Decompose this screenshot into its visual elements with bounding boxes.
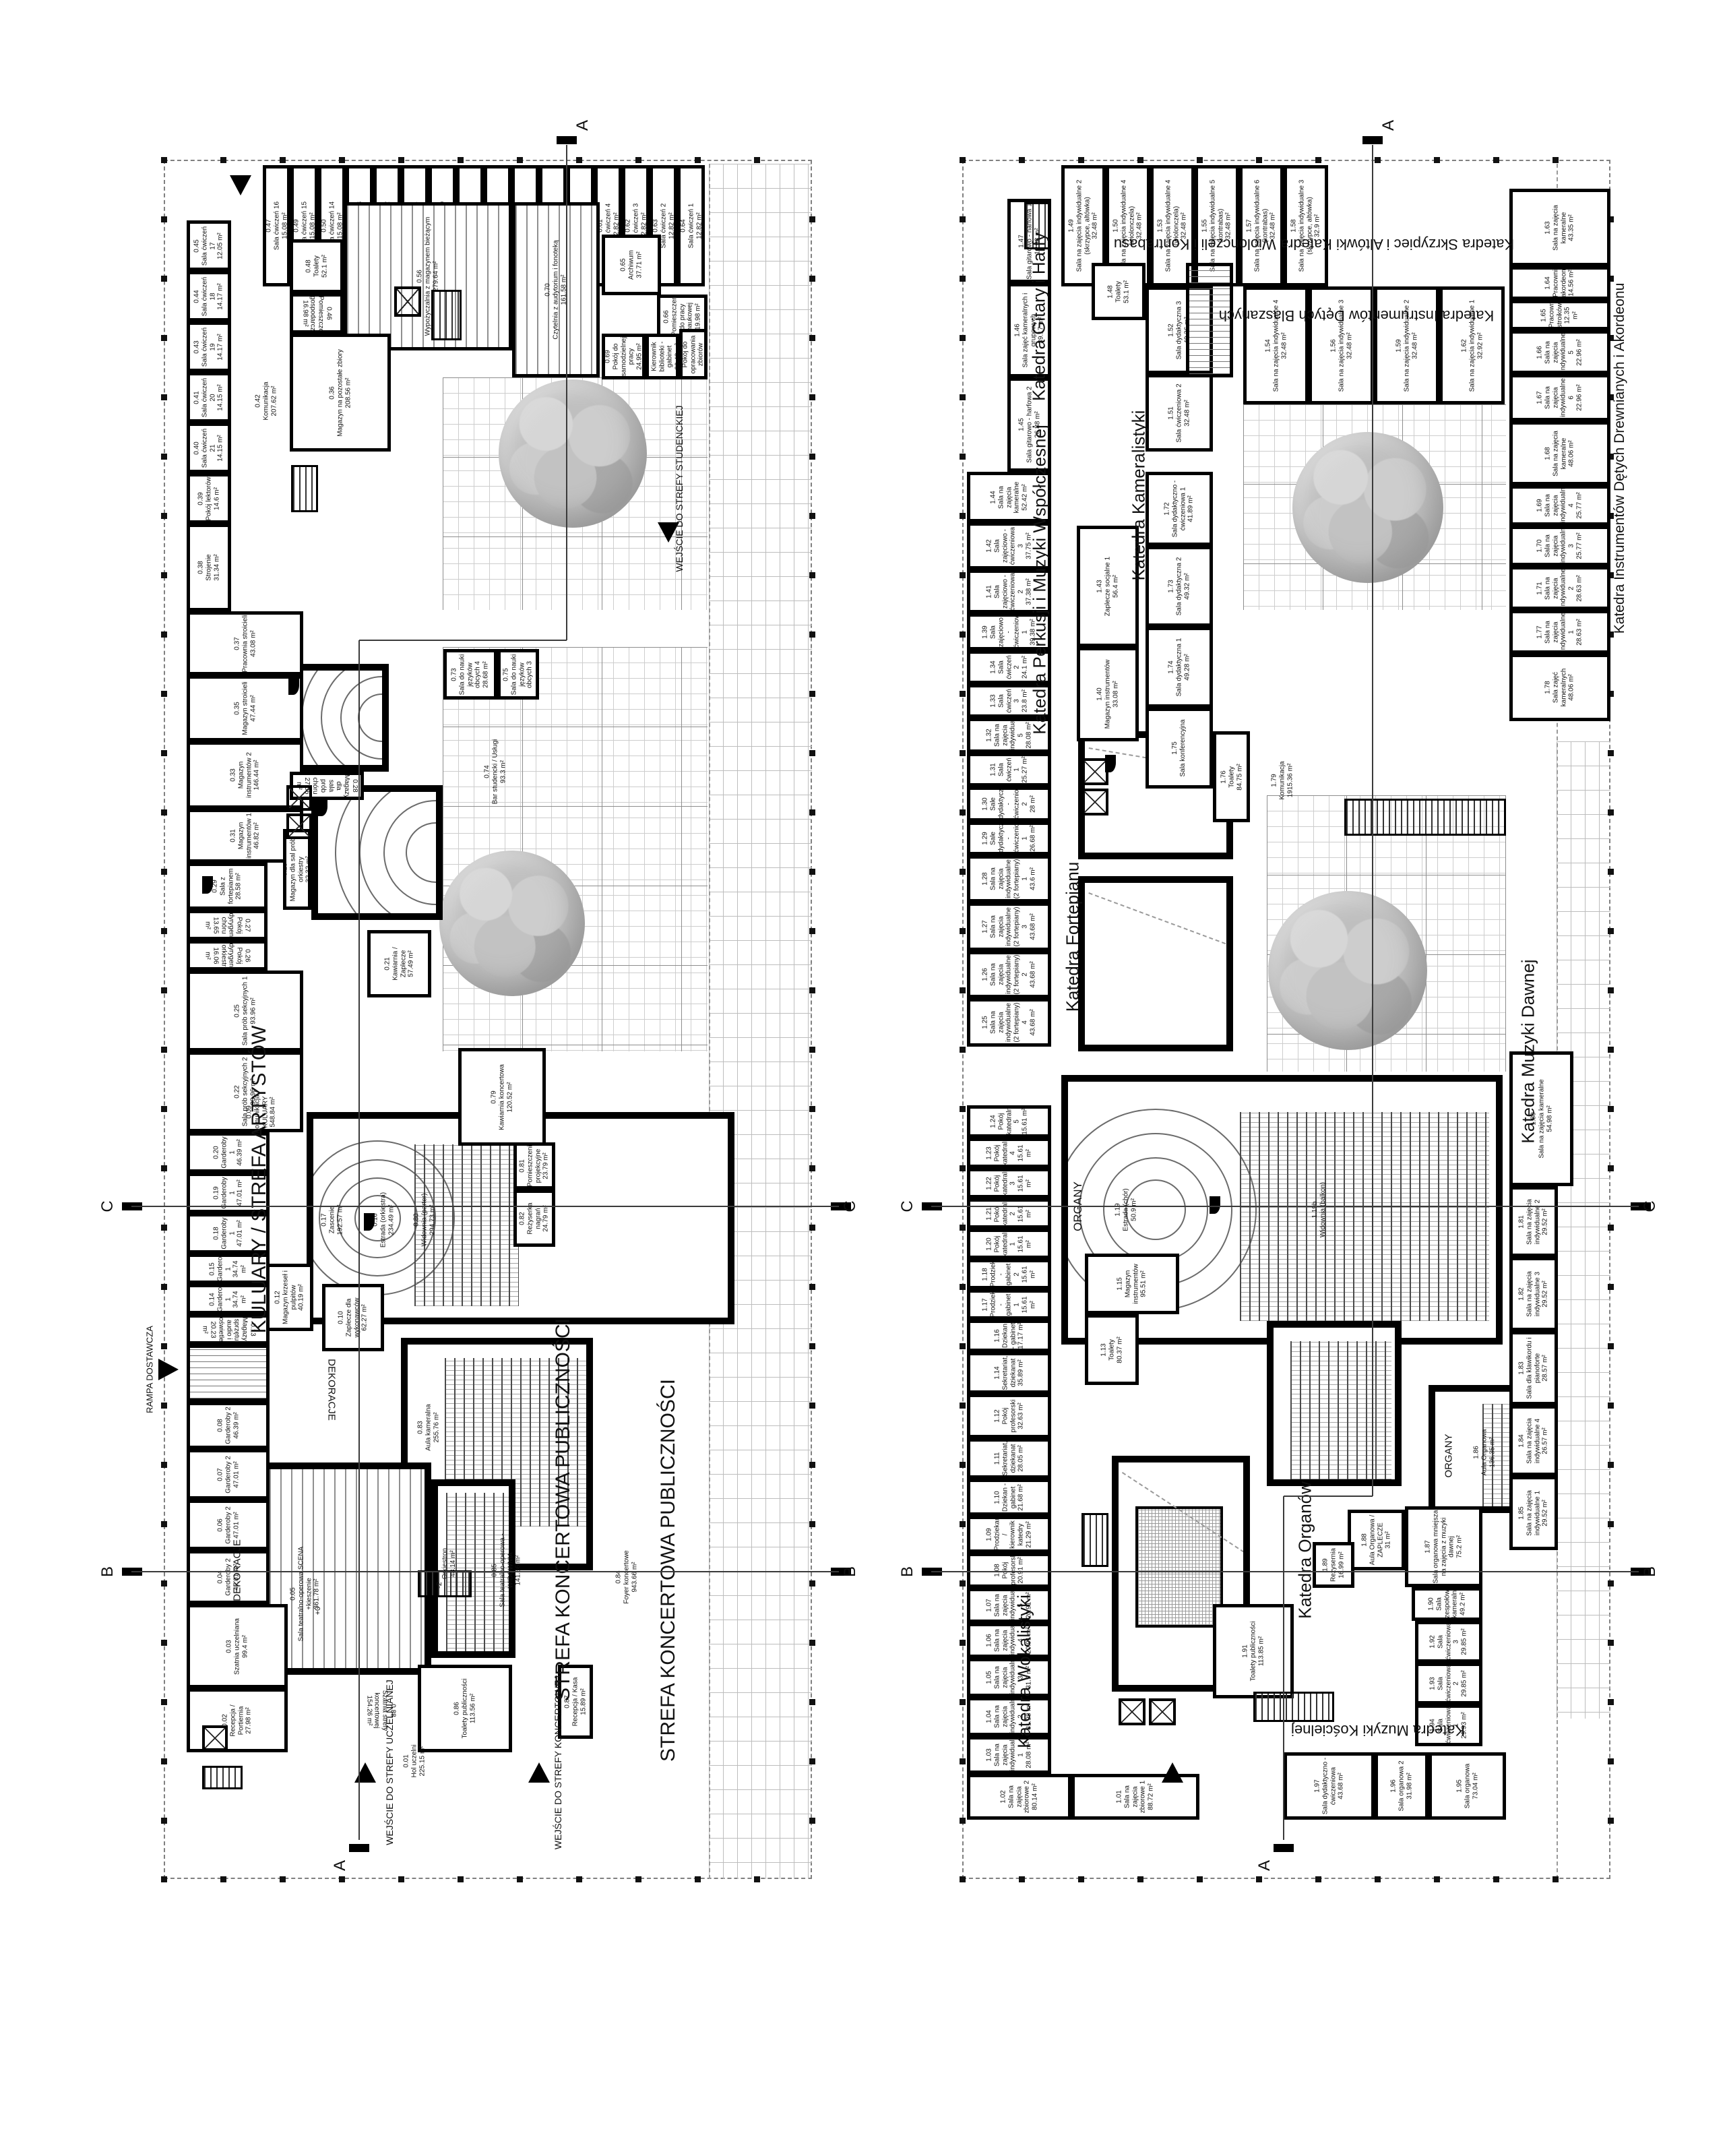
room-area: 21.29 m² — [1025, 1518, 1033, 1550]
room-number: 1.53 — [1156, 168, 1164, 284]
room-label: 1.33Sala ćwiczeń 323.8 m² — [989, 687, 1029, 715]
room-number: 1.79 — [1270, 741, 1278, 820]
room-area: 23.8 m² — [1021, 687, 1029, 715]
room-area: 80.37 m² — [1116, 1317, 1124, 1382]
room-label: 1.58Sala na zajęcia indywidualne 3 (skrz… — [1290, 168, 1321, 284]
room: 1.70Sala na zajęcia indywidualne 325.77 … — [1509, 526, 1610, 566]
room-label: 1.02Sala na zajęcia zbiorowe 280.14 m² — [999, 1777, 1039, 1817]
room-name: Komunikacja — [1278, 741, 1286, 820]
room-number: 1.26 — [981, 954, 989, 995]
room-label: 1.01Sala na zajęcia zbiorowe 188.72 m² — [1116, 1777, 1156, 1817]
room-number: 1.05 — [985, 1661, 993, 1694]
room-number: 1.58 — [1290, 168, 1298, 284]
column-dot — [960, 632, 966, 638]
room-area: 26.57 m² — [1542, 1408, 1550, 1473]
section-marker-letter: B — [1641, 1566, 1660, 1577]
room-number: 1.95 — [1455, 1755, 1464, 1817]
room-area: 29.85 m² — [1461, 1665, 1469, 1702]
room-number: 1.41 — [985, 572, 993, 611]
room: 1.56Sala na zajęcia indywidualne 332.48 … — [1309, 286, 1374, 404]
room-area: 49.28 m² — [1183, 629, 1191, 705]
room-area: 136.35 m² — [1488, 1415, 1496, 1490]
section-marker-bar — [922, 1202, 942, 1210]
room-number: 1.09 — [985, 1518, 993, 1550]
room-number: 1.51 — [1167, 377, 1175, 449]
room-name: Sala na zajęcia indywidualne 2 — [1544, 569, 1575, 607]
room-name: Sala na zajęcia indywidualne 6 (kontraba… — [1253, 168, 1269, 284]
room-label: 1.74Sala dydaktyczna 149.28 m² — [1167, 629, 1191, 705]
room-name: Toalety — [1228, 734, 1236, 820]
room-number: 1.12 — [993, 1396, 1001, 1436]
room-number: 1.72 — [1163, 474, 1171, 543]
room-name: Sala na zajęcia indywidualne 4 — [1526, 1408, 1542, 1473]
room-label: 1.95Sala organowa73.04 m² — [1455, 1755, 1479, 1817]
room-name: Pokój katedralny 4 — [993, 1140, 1017, 1165]
room-label: 1.84Sala na zajęcia indywidualne 426.57 … — [1517, 1408, 1549, 1473]
room-number: 1.68 — [1544, 424, 1552, 483]
column-dot — [960, 513, 966, 519]
room: 1.18Prodziekan - gabinet 215.61 m² — [967, 1259, 1051, 1289]
room: 1.81Sala na zajęcia indywidualne 229.52 … — [1509, 1186, 1558, 1257]
room-number: 1.83 — [1517, 1334, 1526, 1403]
column-dot — [960, 1106, 966, 1112]
room-name: Pokój katedralny 5 — [997, 1108, 1021, 1135]
room-name: Magazyn instrumentów — [1104, 650, 1112, 739]
room-number: 1.30 — [981, 789, 989, 819]
section-marker-letter: C — [1641, 1200, 1660, 1212]
zone-label: Katedra Skrzypiec i Altówki Katedra Wiol… — [1114, 235, 1514, 253]
column-dot — [1493, 1876, 1499, 1882]
room-label: 1.13Toalety80.37 m² — [1100, 1317, 1123, 1382]
room-label: 1.29Sale dydaktyczno - ćwiczeniowe 126.6… — [981, 824, 1037, 853]
zone-label: Katedra Instrumentów Dętych Drewnianych … — [1612, 283, 1628, 634]
room-area: 113.85 m² — [1257, 1607, 1265, 1696]
room-name: Sala ćwiczeń 3 — [997, 687, 1021, 715]
room-area: 33.08 m² — [1112, 650, 1120, 739]
column-dot — [1608, 987, 1614, 993]
room-name: Sala zespołów kameralnych — [1435, 1590, 1459, 1618]
room-number: 1.14 — [993, 1355, 1001, 1391]
zone-label: ORGANY — [1443, 1434, 1455, 1477]
column-dot — [960, 454, 966, 460]
room: 1.63Sala na zajęcia kameralne43.35 m² — [1509, 189, 1610, 266]
room-number: 1.93 — [1429, 1665, 1437, 1702]
room-name: Sala zajęciowo - ćwiczeniowa 2 — [993, 572, 1025, 611]
room-label: 1.68Sala na zajęcia kameralne48.06 m² — [1544, 424, 1575, 483]
room-area: 17.17 m² — [1017, 1322, 1025, 1349]
room: 1.13Toalety80.37 m² — [1085, 1314, 1139, 1385]
column-dot — [960, 1521, 966, 1527]
room: 1.97Sala dydaktyczno - ćwiczeniowa43.68 … — [1284, 1752, 1375, 1820]
room-area: 35.89 m² — [1017, 1355, 1025, 1391]
room-name: Sala na zajęcia kameralne — [1552, 191, 1568, 264]
room-name: Sala ćwiczeń 2 — [997, 653, 1021, 681]
room-area: 29.52 m² — [1542, 1189, 1550, 1254]
room: 1.11Sekretariat, dziekanat28.05 m² — [967, 1438, 1051, 1479]
room: 1.19bWidownia (balkon) — [1304, 1173, 1334, 1247]
room-number: 1.10 — [993, 1481, 1001, 1513]
room-number: 1.39 — [981, 616, 989, 648]
column-dot — [960, 572, 966, 578]
section-marker-bar — [1362, 136, 1383, 144]
room-name: Dziekan - gabinet — [1001, 1481, 1017, 1513]
section-marker-letter: C — [898, 1200, 917, 1212]
column-dot — [960, 869, 966, 875]
column-dot — [1019, 157, 1025, 163]
room-label: 1.28Sala na zajęcia indywidualne (2 fort… — [981, 858, 1037, 900]
room-area: 24.1 m² — [1021, 653, 1029, 681]
room-label: 1.77Sala na zajęcia indywidualne 128.63 … — [1536, 613, 1584, 651]
column-dot — [960, 1462, 966, 1468]
zone-label: Katedra Kameralistyki — [1129, 410, 1150, 581]
room-name: Sala zajęciowo - ćwiczeniowa 1 — [989, 616, 1029, 648]
column-dot — [960, 1225, 966, 1231]
zone-label: Katedra Gitary i Harfy — [1029, 233, 1050, 401]
column-dot — [960, 276, 966, 282]
column-dot — [1137, 157, 1143, 163]
room-number: 1.92 — [1429, 1624, 1437, 1660]
room-name: Sala na zajęcia indywidualne 4 (wioloncz… — [1164, 168, 1181, 284]
column-dot — [1608, 1225, 1614, 1231]
room: 1.87Sala organowa mniejsza na zajęcia z … — [1405, 1506, 1482, 1587]
room-area: 25.77 m² — [1576, 488, 1584, 523]
room-area: 43.68 m² — [1029, 905, 1037, 948]
room-number: 1.76 — [1220, 734, 1228, 820]
room-area: 15.61 m² — [1017, 1201, 1033, 1226]
room-label: 1.70Sala na zajęcia indywidualne 325.77 … — [1536, 528, 1584, 563]
room-area: 28 m² — [1029, 789, 1037, 819]
room: 1.21Pokój katedralny 215.61 m² — [967, 1198, 1051, 1229]
room-area: 48.06 m² — [1568, 424, 1576, 483]
room-name: Sala ćwiczeniowa 3 — [1437, 1624, 1460, 1660]
void-diagonal — [1088, 892, 1233, 968]
room-area: 43.68 m² — [1029, 1001, 1037, 1044]
room-number: 1.17 — [981, 1292, 989, 1317]
section-marker-letter: A — [1255, 1860, 1274, 1871]
column-dot — [960, 987, 966, 993]
room-label: 1.26Sala na zajęcia indywidualne (2 fort… — [981, 954, 1037, 995]
room: 1.40Magazyn instrumentów33.08 m² — [1077, 647, 1139, 741]
room-number: 1.75 — [1171, 710, 1179, 786]
column-dot — [1197, 1876, 1203, 1882]
room-name: Pracownia akordeonu — [1552, 269, 1568, 297]
column-dot — [960, 1640, 966, 1646]
room: 1.88Aula Organowa / ZAPLECZE31 m² — [1348, 1510, 1405, 1570]
room-label: 1.97Sala dydaktyczno - ćwiczeniowa43.68 … — [1313, 1755, 1345, 1817]
room: 1.59Sala na zajęcia indywidualne 232.48 … — [1374, 286, 1439, 404]
room-area: 28.63 m² — [1576, 613, 1584, 651]
room-name: Sala konferencyjna — [1179, 710, 1187, 786]
column-dot — [960, 928, 966, 934]
room-label: 1.89Reżysernia16.99 m² — [1321, 1545, 1345, 1585]
room-label: 1.32Sala na zajęcia indywidualne 528.08 … — [985, 720, 1033, 750]
room-number: 1.20 — [985, 1231, 993, 1256]
room-area: 15.61 m² — [1017, 1140, 1033, 1165]
room-number: 1.66 — [1536, 333, 1544, 371]
room: 1.25Sala na zajęcia indywidualne (2 fort… — [967, 998, 1051, 1047]
room: 1.68Sala na zajęcia kameralne48.06 m² — [1509, 421, 1610, 485]
room: 1.96Sala organowa 231.98 m² — [1375, 1752, 1429, 1820]
room: 1.09Prodziekan / kierownik katedry21.29 … — [967, 1516, 1051, 1553]
room-number: 1.43 — [1096, 528, 1104, 644]
room-label: 1.18Prodziekan - gabinet 215.61 m² — [981, 1262, 1037, 1287]
room-name: Prodziekan - gabinet 1 — [989, 1292, 1021, 1317]
room: 1.27Sala na zajęcia indywidualne (2 fort… — [967, 902, 1051, 951]
room: 1.24Pokój katedralny 515.61 m² — [967, 1105, 1051, 1138]
room-area: 43.6 m² — [1029, 858, 1037, 900]
room: 1.58Sala na zajęcia indywidualne 3 (skrz… — [1284, 165, 1328, 286]
room-number: 1.06 — [985, 1626, 993, 1655]
room-label: 1.17Prodziekan - gabinet 115.61 m² — [981, 1292, 1037, 1317]
room-number: 1.07 — [985, 1591, 993, 1620]
room-label: 1.31Sala ćwiczeń 125.27 m² — [989, 756, 1029, 784]
column-dot — [960, 1284, 966, 1290]
room: 1.02Sala na zajęcia zbiorowe 280.14 m² — [967, 1774, 1071, 1820]
room-number: 1.87 — [1424, 1509, 1432, 1584]
room-number: 1.73 — [1167, 549, 1175, 624]
hall — [1267, 1321, 1402, 1486]
column-dot — [960, 1580, 966, 1587]
room-area: 41.89 m² — [1187, 474, 1195, 543]
column-dot — [1608, 1758, 1614, 1764]
room-label: 1.22Pokój katedralny 315.61 m² — [985, 1171, 1033, 1196]
room-name: Sala dydaktyczna 3 — [1175, 289, 1183, 371]
room-number: 1.81 — [1517, 1189, 1526, 1254]
room-area: 52.42 m² — [1021, 474, 1029, 520]
room-label: 1.83Sala dla klawikordu i pianoforte28.5… — [1517, 1334, 1549, 1403]
room-number: 1.44 — [989, 474, 997, 520]
room-name: Sala ćwiczeniowa 2 — [1175, 377, 1183, 449]
room-name: Sala na zajęcia indywidualne 6 — [1544, 377, 1575, 419]
room: 1.22Pokój katedralny 315.61 m² — [967, 1168, 1051, 1198]
room-label: 1.76Toalety84.75 m² — [1220, 734, 1243, 820]
room-name: Toalety — [1115, 266, 1123, 317]
column-dot — [1493, 157, 1499, 163]
room-area: 32.48 m² — [1183, 377, 1191, 449]
room-name: Sale dydaktyczno - ćwiczeniowe 2 — [989, 789, 1029, 819]
room-number: 1.19b — [1311, 1175, 1319, 1244]
column-dot — [1608, 750, 1614, 756]
column-dot — [960, 335, 966, 341]
room-name: Pokój profesorski — [1001, 1396, 1017, 1436]
room-number: 1.86 — [1472, 1415, 1480, 1490]
column-dot — [1197, 157, 1203, 163]
column-dot — [1137, 1876, 1143, 1882]
section-marker-bar — [1274, 1844, 1294, 1852]
room-name: Sala na zajęcia zbiorowe 1 — [1123, 1777, 1147, 1817]
column-dot — [1608, 809, 1614, 815]
column-dot — [1608, 1343, 1614, 1349]
room: 1.91Toalety publiczności113.85 m² — [1213, 1604, 1294, 1698]
column-dot — [960, 216, 966, 222]
column-dot — [1434, 157, 1440, 163]
room-label: 1.19Estrada (chór)50.9 m² — [1114, 1175, 1137, 1244]
room-name: Sala zajęć kameralnych — [1552, 656, 1568, 718]
room: 1.79Komunikacja1915.36 m² — [1263, 738, 1300, 822]
room-name: Sala na zajęcia zbiorowe 2 — [1007, 1777, 1031, 1817]
column-dot — [1078, 157, 1084, 163]
room: 1.54Sala na zajęcia indywidualne 432.48 … — [1243, 286, 1309, 404]
room-label: 1.63Sala na zajęcia kameralne43.35 m² — [1544, 191, 1575, 264]
room-label: 1.34Sala ćwiczeń 224.1 m² — [989, 653, 1029, 681]
elevator — [1119, 1698, 1146, 1725]
room-number: 1.13 — [1100, 1317, 1108, 1382]
room: 1.29Sale dydaktyczno - ćwiczeniowe 126.6… — [967, 822, 1051, 855]
room-area: 95.51 m² — [1140, 1256, 1148, 1312]
room-area: 15.61 m² — [1017, 1231, 1033, 1256]
room: 1.74Sala dydaktyczna 149.28 m² — [1146, 627, 1213, 708]
room-area: 48.06 m² — [1568, 656, 1576, 718]
room-number: 1.27 — [981, 905, 989, 948]
room-name: Widownia (balkon) — [1319, 1175, 1327, 1244]
room-number: 1.19 — [1114, 1175, 1122, 1244]
room-name: Sale dydaktyczno - ćwiczeniowe 1 — [989, 824, 1029, 853]
room: 1.84Sala na zajęcia indywidualne 426.57 … — [1509, 1405, 1558, 1476]
column-dot — [960, 691, 966, 697]
stair — [1081, 1513, 1108, 1567]
room-area: 53.1 m² — [1123, 266, 1131, 317]
column-dot — [960, 1403, 966, 1409]
room-area: 75.2 m² — [1455, 1509, 1464, 1584]
room-label: 1.90Sala zespołów kameralnych49.2 m² — [1427, 1590, 1467, 1618]
room-label: 1.88Aula Organowa / ZAPLECZE31 m² — [1360, 1512, 1392, 1568]
room-area: 31 m² — [1384, 1512, 1392, 1568]
room-number: 1.77 — [1536, 613, 1544, 651]
room-number: 1.96 — [1389, 1755, 1398, 1817]
column-dot — [1608, 869, 1614, 875]
plan-right: 1.49Sala na zajęcia indywidualne 2 (skrz… — [0, 0, 1725, 2156]
room-name: Pracownia stroików — [1548, 303, 1564, 328]
room-number: 1.65 — [1540, 303, 1548, 328]
column-dot — [960, 1876, 966, 1882]
room-number: 1.48 — [1106, 266, 1115, 317]
elevator — [1149, 1698, 1176, 1725]
room-number: 1.03 — [985, 1739, 993, 1771]
room-number: 1.69 — [1536, 488, 1544, 523]
zone-label: Katedra Fortepianu — [1063, 862, 1084, 1012]
room-area: 21.68 m² — [1017, 1481, 1025, 1513]
room-name: Toalety publiczności — [1249, 1607, 1257, 1696]
room-number: 1.11 — [993, 1441, 1001, 1476]
room-area: 50.9 m² — [1129, 1175, 1137, 1244]
column-dot — [1608, 1699, 1614, 1705]
column-dot — [960, 1699, 966, 1705]
room-label: 1.12Pokój profesorski32.63 m² — [993, 1396, 1025, 1436]
room-label: 1.24Pokój katedralny 515.61 m² — [989, 1108, 1029, 1135]
room-label: 1.40Magazyn instrumentów33.08 m² — [1096, 650, 1119, 739]
room-area: 15.61 m² — [1021, 1108, 1029, 1135]
room-name: Sala organowa 2 — [1398, 1755, 1406, 1817]
room-number: 1.52 — [1167, 289, 1175, 371]
column-dot — [960, 1758, 966, 1764]
room-area: 73.04 m² — [1471, 1755, 1479, 1817]
room-number: 1.02 — [999, 1777, 1007, 1817]
zone-label: ORGANY — [1071, 1181, 1085, 1231]
room-name: Pokój katedralny 2 — [993, 1201, 1017, 1226]
room-name: Sala organowa — [1464, 1755, 1472, 1817]
room-area: 54.98 m² — [1545, 1054, 1553, 1183]
room-name: Sala dydaktyczno - ćwiczeniowa 1 — [1171, 474, 1187, 543]
room-number: 1.57 — [1245, 168, 1253, 284]
room-number: 1.21 — [985, 1201, 993, 1226]
room: 1.71Sala na zajęcia indywidualne 228.63 … — [1509, 566, 1610, 610]
column-dot — [960, 394, 966, 400]
room: 1.64Pracownia akordeonu14.56 m² — [1509, 266, 1610, 300]
column-dot — [960, 157, 966, 163]
room: 1.67Sala na zajęcia indywidualne 622.96 … — [1509, 374, 1610, 421]
room-number: 1.08 — [993, 1556, 1001, 1585]
room-number: 1.67 — [1536, 377, 1544, 419]
room-label: 1.11Sekretariat, dziekanat28.05 m² — [993, 1441, 1025, 1476]
room-number: 1.15 — [1116, 1256, 1124, 1312]
room-name: Sala dydaktyczno - ćwiczeniowa — [1321, 1755, 1338, 1817]
room-area: 32.63 m² — [1017, 1396, 1025, 1436]
room-label: 1.65Pracownia stroików12.35 m² — [1540, 303, 1580, 328]
room-label: 1.19bWidownia (balkon) — [1311, 1175, 1327, 1244]
column-dot — [960, 750, 966, 756]
room: 1.89Reżysernia16.99 m² — [1313, 1542, 1354, 1588]
room-area: 15.61 m² — [1021, 1262, 1037, 1287]
room-label: 1.81Sala na zajęcia indywidualne 229.52 … — [1517, 1189, 1549, 1254]
room-number: 1.63 — [1544, 191, 1552, 264]
zone-label: Katedra Wokalistyki — [1014, 1595, 1035, 1748]
room-name: Pokój katedralny 3 — [993, 1171, 1017, 1196]
room: 1.65Pracownia stroików12.35 m² — [1509, 300, 1610, 330]
room: 1.30Sale dydaktyczno - ćwiczeniowe 228 m… — [967, 787, 1051, 822]
room-name: Sala zajęciowo - ćwiczeniowa 3 — [993, 525, 1025, 567]
tree — [1292, 432, 1443, 583]
room-number: 1.33 — [989, 687, 997, 715]
column-dot — [1315, 1876, 1321, 1882]
room-name: Sala dydaktyczna 1 — [1175, 629, 1183, 705]
room-label: 1.14Sekretariat, dziekanat35.89 m² — [993, 1355, 1025, 1391]
room-label: 1.67Sala na zajęcia indywidualne 622.96 … — [1536, 377, 1584, 419]
room: 1.48Toalety53.1 m² — [1092, 263, 1146, 320]
room-name: Sala na zajęcia indywidualne (2 fortepia… — [989, 1001, 1029, 1044]
column-dot — [960, 1818, 966, 1824]
room: 1.93Sala ćwiczeniowa 229.85 m² — [1415, 1663, 1482, 1704]
room: 1.73Sala dydaktyczna 249.32 m² — [1146, 546, 1213, 627]
room-area: 12.35 m² — [1564, 303, 1580, 328]
room-name: Zaplecze socjalne 1 — [1104, 528, 1112, 644]
room: 1.72Sala dydaktyczno - ćwiczeniowa 141.8… — [1146, 472, 1213, 546]
room-number: 1.04 — [985, 1700, 993, 1733]
column-dot — [960, 1343, 966, 1349]
room-label: 1.41Sala zajęciowo - ćwiczeniowa 237.38 … — [985, 572, 1033, 611]
room-name: Pokój katedralny 1 — [993, 1231, 1017, 1256]
column-dot — [960, 1165, 966, 1171]
room-number: 1.16 — [993, 1322, 1001, 1349]
room: 1.86Aula Organowa136.35 m² — [1469, 1412, 1499, 1493]
room-label: 1.93Sala ćwiczeniowa 229.85 m² — [1429, 1665, 1469, 1702]
column-dot — [1608, 928, 1614, 934]
room: 1.05Sala na zajęcia indywidualne 331.9 m… — [967, 1658, 1051, 1697]
room: 1.92Sala ćwiczeniowa 329.85 m² — [1415, 1621, 1482, 1663]
room-area: 29.52 m² — [1542, 1479, 1550, 1547]
room-number: 1.29 — [981, 824, 989, 853]
column-dot — [1608, 1284, 1614, 1290]
room-label: 1.79Komunikacja1915.36 m² — [1270, 741, 1294, 820]
room-name: Aula Organowa / ZAPLECZE — [1369, 1512, 1385, 1568]
room-label: 1.51Sala ćwiczeniowa 232.48 m² — [1167, 377, 1191, 449]
column-dot — [1375, 1876, 1381, 1882]
room-name: Sekretariat, dziekanat — [1001, 1441, 1017, 1476]
room-number: 1.74 — [1167, 629, 1175, 705]
room-area: 49.32 m² — [1183, 549, 1191, 624]
column-dot — [1375, 157, 1381, 163]
room: 1.20Pokój katedralny 115.61 m² — [967, 1229, 1051, 1259]
room-number: 1.84 — [1517, 1408, 1526, 1473]
